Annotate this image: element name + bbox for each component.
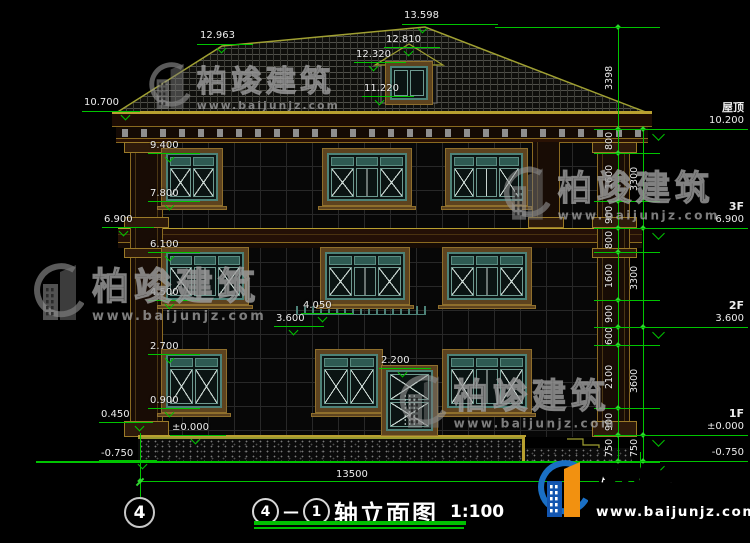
- transom-pane: [380, 157, 403, 166]
- level-line: [148, 354, 200, 355]
- level-line: [379, 368, 431, 369]
- level-line: [362, 96, 414, 97]
- level-label: 3.600: [276, 313, 305, 324]
- dim-value: 900: [602, 300, 617, 327]
- level-label: 12.810: [386, 34, 421, 45]
- eave-lip: [116, 139, 648, 143]
- level-label: 0.450: [101, 409, 130, 420]
- window-pane: [324, 369, 348, 404]
- floor-name: 1F: [648, 408, 744, 420]
- level-label: 12.320: [356, 49, 391, 60]
- level-label: 6.100: [150, 239, 179, 250]
- window-pane: [454, 168, 474, 197]
- level-label: 2.200: [381, 355, 410, 366]
- level-label: -0.750: [101, 448, 133, 459]
- window-pane: [329, 267, 352, 296]
- level-line: [170, 435, 226, 436]
- level-label: 4.050: [303, 300, 332, 311]
- window-pane: [410, 70, 424, 96]
- level-line: [102, 227, 154, 228]
- transom-pane: [500, 358, 523, 367]
- window: [322, 148, 412, 206]
- transom-pane: [476, 256, 499, 265]
- window-sill: [311, 413, 387, 417]
- watermark: 柏竣建筑www.baijunjz.com: [396, 370, 616, 441]
- transom-pane: [454, 157, 474, 166]
- dim-value: 800: [602, 129, 617, 153]
- watermark: 柏竣建筑www.baijunjz.com: [30, 258, 266, 334]
- extension-line: [594, 345, 660, 346]
- level-label: 2.700: [150, 341, 179, 352]
- window-pane: [451, 267, 474, 296]
- level-line: [384, 47, 440, 48]
- dim-value: 3398: [602, 27, 617, 129]
- level-label: 12.963: [200, 30, 235, 41]
- window-pane: [378, 267, 401, 296]
- level-line: [148, 252, 200, 253]
- overall-dim-value: 13500: [336, 469, 368, 480]
- transom-pane: [378, 256, 401, 265]
- transom-pane: [354, 256, 377, 265]
- extension-line: [594, 327, 660, 328]
- transom-pane: [451, 256, 474, 265]
- title-underline-2: [254, 527, 464, 529]
- level-label: 9.400: [150, 140, 179, 151]
- transom-pane: [451, 358, 474, 367]
- watermark-brand: 柏竣建筑: [596, 467, 750, 500]
- level-line: [274, 326, 324, 327]
- level-label: 11.220: [364, 83, 399, 94]
- watermark-text: 柏竣建筑www.baijunjz.com: [454, 379, 616, 431]
- level-line: [402, 24, 498, 25]
- watermark: 柏竣建筑www.baijunjz.com: [146, 58, 340, 120]
- window-pane: [195, 369, 218, 404]
- window-frame: [325, 252, 405, 300]
- level-label: 0.900: [150, 395, 179, 406]
- brand-logo: 柏竣建筑www.baijunjz.com: [534, 455, 750, 531]
- extension-line: [594, 129, 660, 130]
- transom-pane: [195, 358, 218, 367]
- window-pane: [380, 168, 403, 197]
- window-frame: [327, 153, 407, 201]
- watermark-logo-icon: [500, 162, 550, 233]
- level-line: [148, 408, 200, 409]
- watermark-text: 柏竣建筑www.baijunjz.com: [197, 66, 340, 112]
- window-pane: [350, 369, 374, 404]
- extension-line: [594, 300, 660, 301]
- level-label: 6.900: [104, 214, 133, 225]
- dim-value: 1600: [602, 252, 617, 300]
- level-line: [99, 460, 157, 461]
- title-dash: —: [283, 502, 299, 521]
- transom-pane: [331, 157, 354, 166]
- floor-name: 屋顶: [648, 102, 744, 114]
- title-scale: 1:100: [450, 502, 504, 522]
- transom-pane: [476, 157, 496, 166]
- transom-pane: [324, 358, 348, 367]
- brand-logo-icon: [534, 455, 588, 531]
- floor-elevation: 10.200: [648, 115, 744, 126]
- level-line: [301, 313, 353, 314]
- level-label: 13.598: [404, 10, 439, 21]
- level-line: [148, 201, 200, 202]
- level-label: 7.800: [150, 188, 179, 199]
- eave-dentils: [116, 127, 648, 139]
- extension-line: [594, 153, 660, 154]
- transom-pane: [500, 256, 523, 265]
- axis-bubble-4: 4: [124, 497, 155, 528]
- watermark-url: www.baijunjz.com: [454, 417, 616, 431]
- level-label: ±0.000: [172, 422, 209, 433]
- window-sill: [438, 305, 536, 309]
- level-line: [354, 62, 406, 63]
- watermark: 柏竣建筑www.baijunjz.com: [500, 162, 720, 233]
- dim-chain-line: [618, 27, 619, 461]
- window-pane: [500, 267, 523, 296]
- transom-pane: [476, 358, 499, 367]
- window-pane: [356, 168, 379, 197]
- watermark-brand: 柏竣建筑: [92, 268, 266, 305]
- window-pane: [193, 168, 214, 197]
- window-pane: [476, 267, 499, 296]
- watermark-logo-icon: [146, 58, 190, 120]
- watermark-brand: 柏竣建筑: [558, 171, 720, 205]
- window: [315, 349, 383, 413]
- watermark-text: 柏竣建筑www.baijunjz.com: [92, 268, 266, 324]
- dim-value: 600: [602, 327, 617, 345]
- watermark-text: 柏竣建筑www.baijunjz.com: [558, 171, 720, 223]
- level-line: [148, 153, 200, 154]
- window-pane: [476, 168, 496, 197]
- watermark-brand: 柏竣建筑: [197, 66, 340, 96]
- watermark-url: www.baijunjz.com: [558, 209, 720, 223]
- window-frame: [320, 354, 378, 408]
- window-frame: [447, 252, 527, 300]
- floor-elevation: ±0.000: [648, 421, 744, 432]
- transom-pane: [193, 157, 214, 166]
- window-pane: [354, 267, 377, 296]
- level-line: [197, 44, 253, 45]
- transom-pane: [350, 358, 374, 367]
- watermark-logo-icon: [30, 258, 84, 334]
- transom-pane: [329, 256, 352, 265]
- watermark-text: 柏竣建筑www.baijunjz.com: [596, 467, 750, 520]
- watermark-logo-icon: [396, 370, 446, 441]
- window: [320, 247, 410, 305]
- watermark-url: www.baijunjz.com: [197, 100, 340, 112]
- level-line: [99, 422, 153, 423]
- extension-line: [594, 252, 660, 253]
- window: [442, 247, 532, 305]
- title-underline: [254, 521, 466, 525]
- watermark-url: www.baijunjz.com: [92, 309, 266, 324]
- level-line: [82, 111, 140, 112]
- floor-name: 2F: [648, 300, 744, 312]
- transom-pane: [356, 157, 379, 166]
- watermark-brand: 柏竣建筑: [454, 379, 616, 413]
- watermark-url: www.baijunjz.com: [596, 504, 750, 520]
- floor-elevation: 3.600: [648, 313, 744, 324]
- level-label: 10.700: [84, 97, 119, 108]
- elevation-drawing-canvas: 13.59812.96312.81012.32011.22010.7009.40…: [0, 0, 750, 543]
- dim-value: 3600: [627, 327, 642, 435]
- window-pane: [331, 168, 354, 197]
- window-sill: [318, 206, 416, 210]
- extension-line: [594, 27, 660, 28]
- dim-value: 3300: [627, 228, 642, 327]
